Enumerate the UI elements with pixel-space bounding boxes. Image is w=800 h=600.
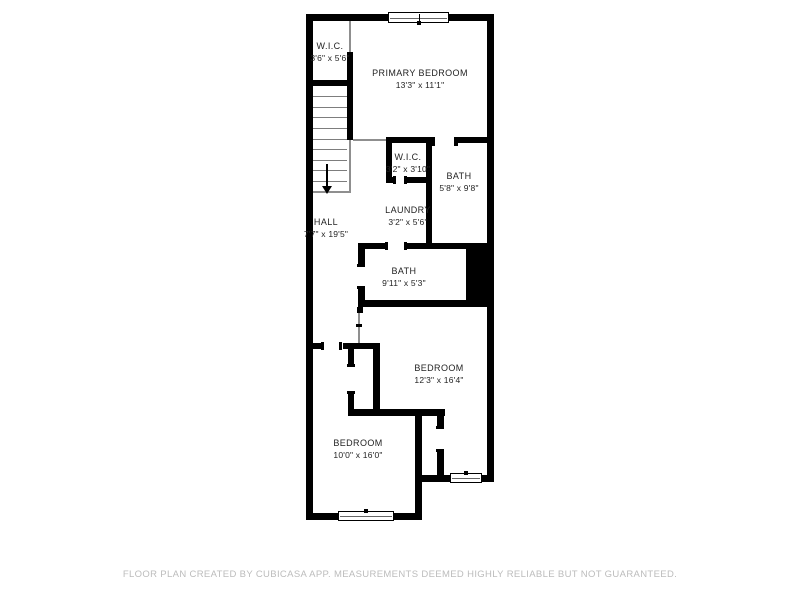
door-jamb (321, 342, 324, 350)
door-opening-line (349, 140, 351, 193)
room-dims: 3'2" x 5'6" (385, 216, 431, 228)
window-center-tick (464, 471, 468, 475)
floor-plan-canvas: W.I.C. 3'6" x 5'6" PRIMARY BEDROOM 13'3"… (0, 0, 800, 600)
room-label-laundry: LAUNDRY 3'2" x 5'6" (385, 204, 431, 228)
door-jamb (356, 324, 362, 327)
stair-arrow-head-icon (322, 186, 332, 194)
stair-tread (313, 149, 347, 150)
wall-segment (348, 394, 354, 410)
stair-tread (313, 107, 347, 108)
door-jamb (404, 176, 407, 184)
wall-segment (407, 243, 466, 249)
room-name: LAUNDRY (385, 204, 431, 216)
shaft-block (466, 243, 494, 302)
wall-segment (415, 416, 422, 513)
window-symbol (338, 511, 394, 521)
room-dims: 3'2" x 3'10" (386, 163, 430, 175)
wall-segment (358, 288, 365, 300)
room-label-bath-hall: BATH 9'11" x 5'3" (382, 265, 426, 289)
room-dims: 3'6" x 5'6" (310, 52, 349, 64)
room-name: W.I.C. (310, 40, 349, 52)
room-name: W.I.C. (386, 151, 430, 163)
wall-segment (358, 243, 365, 266)
window-symbol (388, 12, 449, 23)
wall-segment (373, 349, 380, 410)
door-opening-line (313, 191, 351, 193)
room-name: BATH (382, 265, 426, 277)
room-label-hall: HALL 7'7" x 19'5" (304, 216, 348, 240)
room-dims: 13'3" x 11'1" (372, 79, 468, 91)
room-name: BATH (439, 170, 478, 182)
door-jamb (347, 364, 355, 367)
room-dims: 9'11" x 5'3" (382, 277, 426, 289)
room-label-bedroom-right: BEDROOM 12'3" x 16'4" (414, 362, 463, 386)
wall-segment (347, 86, 353, 140)
room-name: HALL (304, 216, 348, 228)
room-dims: 12'3" x 16'4" (414, 374, 463, 386)
room-name: BEDROOM (414, 362, 463, 374)
window-symbol (450, 473, 482, 483)
door-jamb (404, 242, 407, 250)
door-jamb (357, 264, 365, 267)
stair-direction-arrow (326, 164, 328, 187)
room-dims: 5'8" x 9'8" (439, 182, 478, 194)
door-jamb (436, 426, 444, 429)
stair-tread (313, 117, 347, 118)
door-jamb (393, 176, 396, 184)
stair-tread (313, 128, 347, 129)
room-label-primary-bedroom: PRIMARY BEDROOM 13'3" x 11'1" (372, 67, 468, 91)
door-jamb (454, 137, 458, 146)
wall-segment (306, 14, 313, 520)
window-frame-line (452, 478, 480, 479)
stair-tread (313, 139, 347, 140)
room-label-bath-ensuite: BATH 5'8" x 9'8" (439, 170, 478, 194)
room-label-wic-middle: W.I.C. 3'2" x 3'10" (386, 151, 430, 175)
room-label-bedroom-left: BEDROOM 10'0" x 16'0" (333, 437, 382, 461)
door-jamb (347, 391, 355, 394)
wall-segment (348, 409, 445, 416)
door-opening-line (358, 313, 360, 343)
door-jamb (436, 449, 444, 452)
window-divider (419, 14, 420, 21)
stair-tread (313, 181, 347, 182)
room-dims: 7'7" x 19'5" (304, 228, 348, 240)
door-jamb (385, 242, 388, 250)
room-dims: 10'0" x 16'0" (333, 449, 382, 461)
footer-disclaimer: FLOOR PLAN CREATED BY CUBICASA APP. MEAS… (123, 569, 677, 580)
window-frame-line (340, 516, 392, 517)
stair-tread (313, 160, 347, 161)
room-name: BEDROOM (333, 437, 382, 449)
door-jamb (339, 342, 342, 350)
stair-tread (313, 170, 347, 171)
door-jamb (357, 286, 365, 289)
wall-segment (458, 137, 487, 143)
wall-segment (437, 452, 444, 475)
stair-tread (313, 96, 347, 97)
wall-segment (358, 300, 494, 307)
room-name: PRIMARY BEDROOM (372, 67, 468, 79)
door-opening-line (353, 139, 386, 141)
window-center-tick (417, 21, 421, 25)
door-jamb (431, 137, 435, 146)
window-center-tick (364, 509, 368, 513)
room-label-wic-top: W.I.C. 3'6" x 5'6" (310, 40, 349, 64)
